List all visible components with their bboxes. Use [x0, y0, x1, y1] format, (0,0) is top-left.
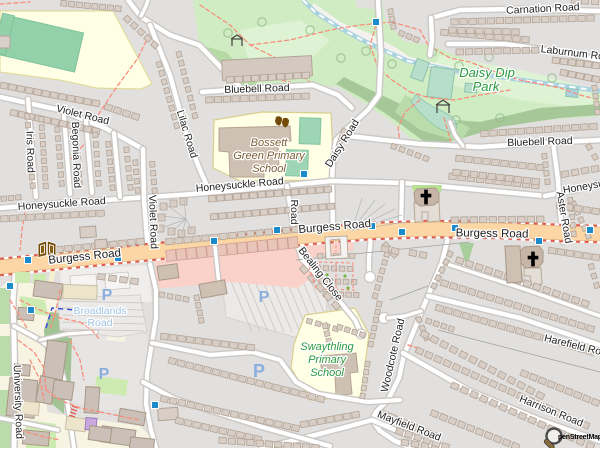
- svg-text:Bossett: Bossett: [251, 137, 289, 149]
- svg-text:Primary: Primary: [308, 354, 347, 366]
- svg-text:School: School: [310, 367, 344, 379]
- svg-text:Swaythling: Swaythling: [300, 341, 354, 353]
- svg-text:P: P: [253, 361, 265, 381]
- svg-text:Road: Road: [87, 317, 112, 329]
- svg-text:P: P: [259, 289, 270, 306]
- svg-text:Bluebell Road: Bluebell Road: [507, 135, 573, 149]
- svg-text:Road: Road: [288, 199, 300, 224]
- svg-text:Burgess Road: Burgess Road: [456, 227, 529, 240]
- svg-text:Park: Park: [473, 79, 501, 94]
- svg-text:Broadlands: Broadlands: [73, 305, 126, 317]
- svg-text:Green Primary: Green Primary: [233, 150, 306, 162]
- svg-text:P: P: [102, 287, 113, 304]
- svg-text:Daisy Dip: Daisy Dip: [459, 65, 515, 80]
- svg-text:Violet Road: Violet Road: [146, 195, 160, 250]
- svg-text:penStreetMap: penStreetMap: [558, 434, 600, 441]
- svg-text:Iris Road: Iris Road: [23, 131, 36, 174]
- svg-text:Begonia Road: Begonia Road: [69, 121, 83, 188]
- svg-text:School: School: [252, 163, 286, 175]
- svg-text:P: P: [99, 366, 110, 383]
- svg-text:Bluebell Road: Bluebell Road: [224, 82, 290, 96]
